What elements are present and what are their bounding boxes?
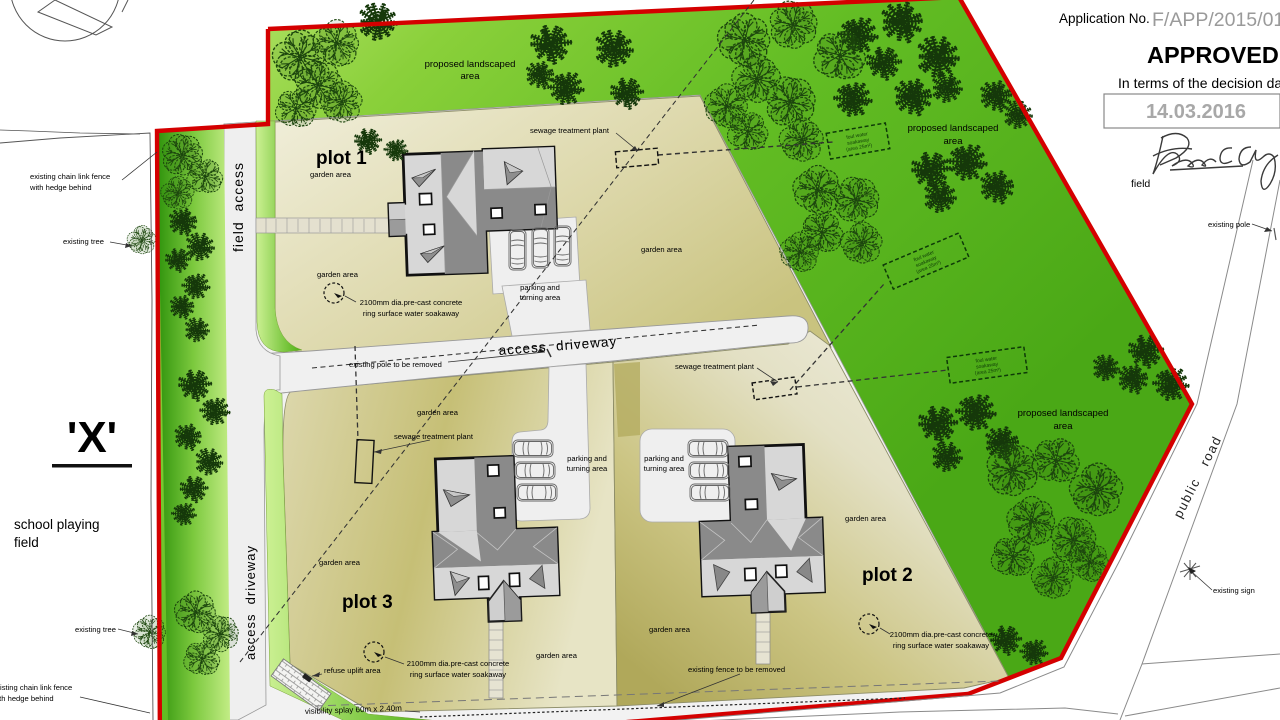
svg-text:parking and: parking and — [520, 283, 560, 292]
svg-text:proposed landscaped: proposed landscaped — [1018, 408, 1109, 419]
svg-text:garden area: garden area — [310, 170, 352, 179]
svg-text:sewage treatment plant: sewage treatment plant — [675, 362, 755, 371]
svg-text:garden area: garden area — [641, 245, 683, 254]
svg-text:garden area: garden area — [845, 514, 887, 523]
svg-text:garden area: garden area — [317, 270, 359, 279]
svg-text:access driveway: access driveway — [243, 545, 258, 660]
svg-text:plot 1: plot 1 — [316, 148, 367, 169]
svg-text:area: area — [1053, 421, 1073, 432]
svg-text:turning area: turning area — [520, 293, 561, 302]
svg-text:Application No.: Application No. — [1059, 11, 1150, 26]
svg-text:garden area: garden area — [649, 625, 691, 634]
svg-text:existing pole: existing pole — [1208, 220, 1250, 229]
svg-text:area: area — [943, 136, 963, 147]
svg-text:proposed landscaped: proposed landscaped — [908, 123, 999, 134]
svg-text:refuse uplift area: refuse uplift area — [324, 666, 381, 675]
svg-text:with hedge behind: with hedge behind — [0, 694, 54, 703]
svg-text:garden area: garden area — [319, 558, 361, 567]
svg-text:existing tree: existing tree — [75, 625, 116, 634]
svg-text:area: area — [460, 71, 480, 82]
svg-text:existing chain link fence: existing chain link fence — [0, 683, 72, 692]
svg-text:plot 2: plot 2 — [862, 565, 913, 586]
svg-text:2100mm dia.pre-cast concrete: 2100mm dia.pre-cast concrete — [890, 630, 993, 639]
svg-text:garden area: garden area — [536, 651, 578, 660]
svg-text:ring surface water soakaway: ring surface water soakaway — [363, 309, 459, 318]
svg-text:sewage treatment plant: sewage treatment plant — [394, 432, 474, 441]
svg-text:proposed landscaped: proposed landscaped — [425, 59, 516, 70]
svg-text:existing fence to be removed: existing fence to be removed — [688, 665, 785, 674]
svg-text:existing chain link fence: existing chain link fence — [30, 172, 110, 181]
svg-text:field access: field access — [230, 162, 246, 252]
svg-text:garden area: garden area — [417, 408, 459, 417]
svg-text:field: field — [1131, 178, 1150, 190]
svg-text:F/APP/2015/01: F/APP/2015/01 — [1152, 9, 1280, 31]
svg-text:school playing: school playing — [14, 517, 100, 532]
svg-text:2100mm dia.pre-cast concrete: 2100mm dia.pre-cast concrete — [407, 659, 510, 668]
svg-text:APPROVED: APPROVED — [1147, 42, 1279, 68]
svg-text:with hedge behind: with hedge behind — [29, 183, 92, 192]
svg-text:plot 3: plot 3 — [342, 592, 393, 613]
svg-text:14.03.2016: 14.03.2016 — [1146, 101, 1246, 123]
svg-text:'X': 'X' — [67, 413, 117, 462]
svg-text:field: field — [14, 535, 39, 550]
svg-text:parking and: parking and — [644, 454, 684, 463]
svg-text:2100mm dia.pre-cast concrete: 2100mm dia.pre-cast concrete — [360, 298, 463, 307]
svg-text:existing tree: existing tree — [63, 237, 104, 246]
svg-text:parking and: parking and — [567, 454, 607, 463]
svg-text:turning area: turning area — [567, 464, 608, 473]
svg-text:existing sign: existing sign — [1213, 586, 1255, 595]
svg-text:In terms of the decision date: In terms of the decision date — [1118, 75, 1280, 91]
svg-text:sewage treatment plant: sewage treatment plant — [530, 126, 610, 135]
svg-text:turning area: turning area — [644, 464, 685, 473]
svg-text:ring surface water soakaway: ring surface water soakaway — [410, 670, 506, 679]
svg-text:existing pole to be removed: existing pole to be removed — [349, 360, 442, 369]
svg-text:ring surface water soakaway: ring surface water soakaway — [893, 641, 989, 650]
